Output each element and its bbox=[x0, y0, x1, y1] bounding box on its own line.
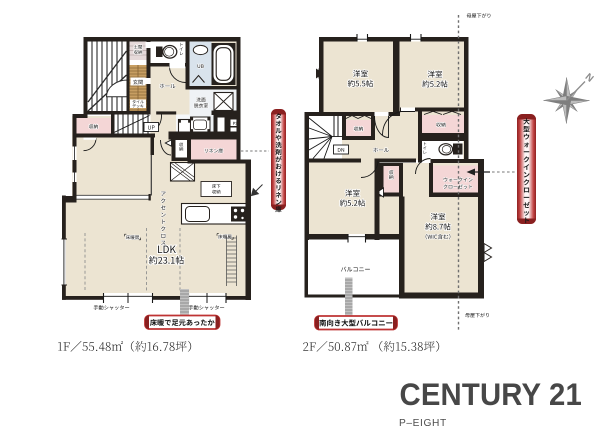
svg-text:CENTURY 21: CENTURY 21 bbox=[400, 377, 583, 412]
svg-text:P–EIGHT: P–EIGHT bbox=[399, 418, 447, 429]
